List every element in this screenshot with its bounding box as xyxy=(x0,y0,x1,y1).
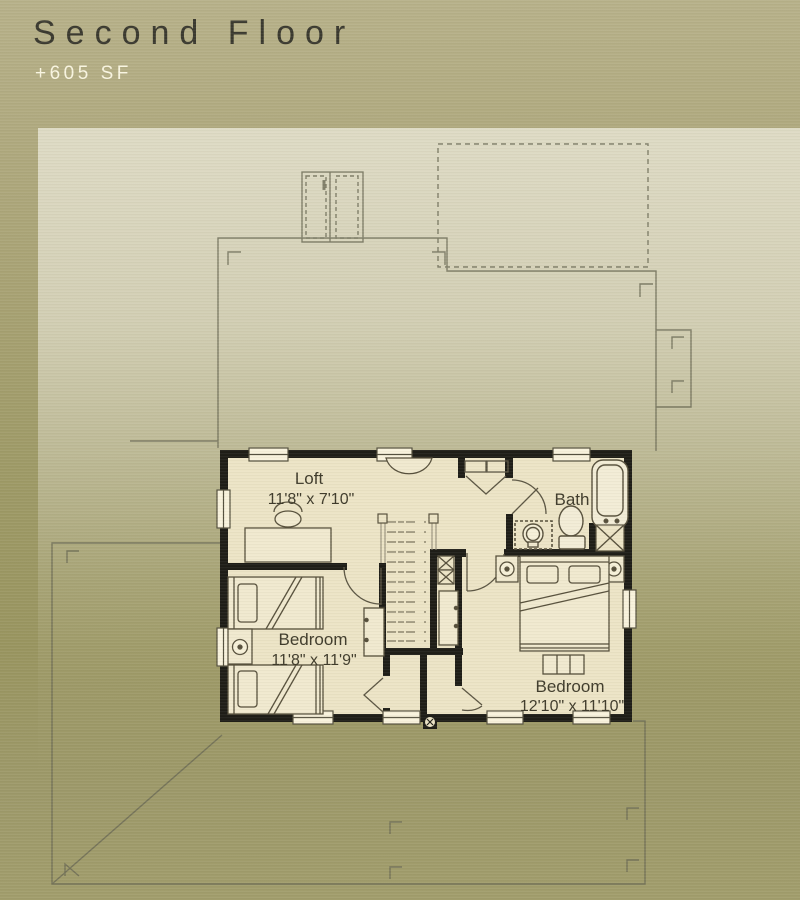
linen-shelves xyxy=(438,556,454,584)
room-label-bath: Bath xyxy=(555,490,590,509)
page: Second Floor +605 SF xyxy=(0,0,800,900)
bench xyxy=(543,655,584,674)
window xyxy=(553,448,590,461)
wardrobe xyxy=(364,608,384,656)
window xyxy=(249,448,288,461)
window xyxy=(487,711,523,724)
second-floor-plan: Loft 11'8" x 7'10" Bath Bedroom 11'8" x … xyxy=(217,448,636,729)
ghost-chimney xyxy=(302,172,363,242)
room-dims-bedroom-right: 12'10" x 11'10" xyxy=(520,698,624,715)
wall-symbol xyxy=(423,715,437,729)
floor-plan-canvas: Loft 11'8" x 7'10" Bath Bedroom 11'8" x … xyxy=(0,0,800,900)
linen-closet xyxy=(596,525,624,551)
room-dims-bedroom-left: 11'8" x 11'9" xyxy=(271,652,356,669)
window xyxy=(623,590,636,628)
nightstand xyxy=(228,629,252,664)
ghost-roof-outline xyxy=(438,144,648,267)
ghost-bay-window xyxy=(656,330,691,407)
ghost-footprint xyxy=(130,238,656,451)
newel-post xyxy=(429,514,438,523)
toilet xyxy=(559,506,585,549)
desk-chair-seat xyxy=(275,511,301,527)
vanity-sink xyxy=(515,521,552,549)
room-label-bedroom-right: Bedroom xyxy=(536,677,605,696)
room-label-loft: Loft xyxy=(295,469,324,488)
window xyxy=(383,711,420,724)
window xyxy=(217,490,230,528)
twin-bed xyxy=(228,577,323,629)
wardrobe xyxy=(439,591,458,645)
room-dims-loft: 11'8" x 7'10" xyxy=(268,491,355,508)
bathtub xyxy=(592,460,628,528)
room-label-bedroom-left: Bedroom xyxy=(279,630,348,649)
nightstand xyxy=(496,556,518,582)
twin-bed xyxy=(228,665,323,714)
desk xyxy=(245,528,331,562)
queen-bed xyxy=(520,556,609,651)
newel-post xyxy=(378,514,387,523)
